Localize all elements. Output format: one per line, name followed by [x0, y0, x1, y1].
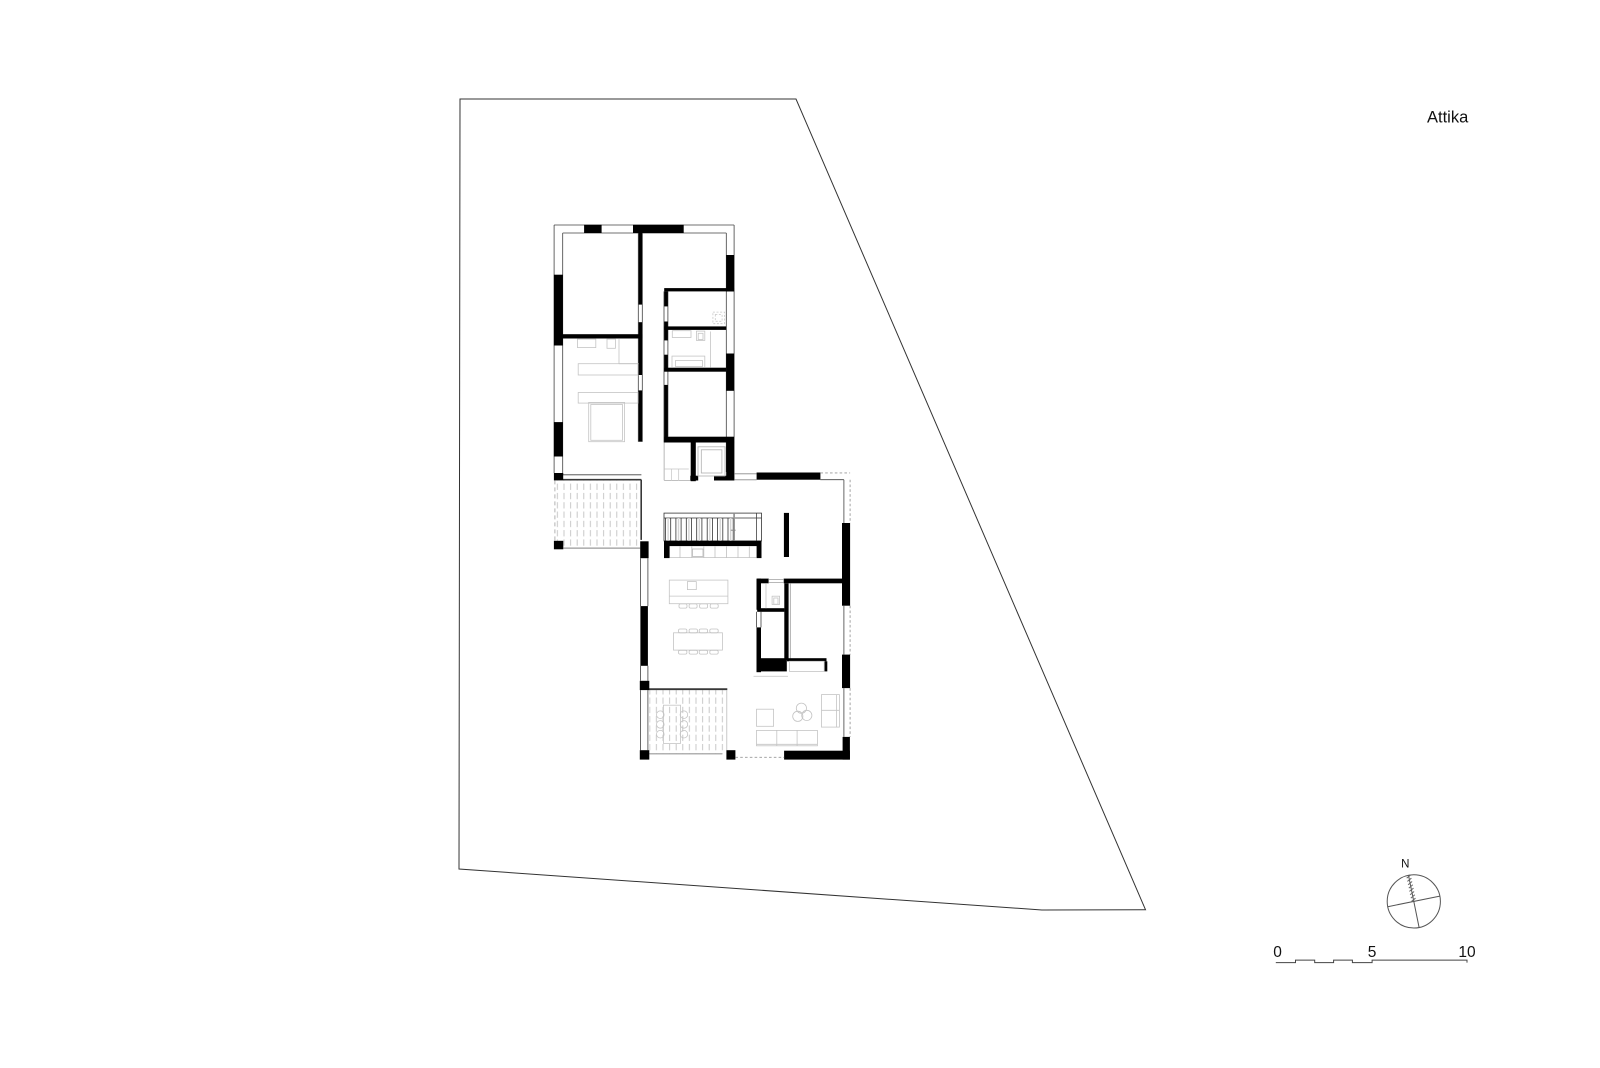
- svg-text:0: 0: [1273, 944, 1282, 961]
- svg-text:N: N: [1401, 859, 1409, 871]
- svg-text:Attika: Attika: [1427, 109, 1469, 127]
- svg-text:5: 5: [1368, 944, 1377, 961]
- svg-text:10: 10: [1458, 944, 1476, 961]
